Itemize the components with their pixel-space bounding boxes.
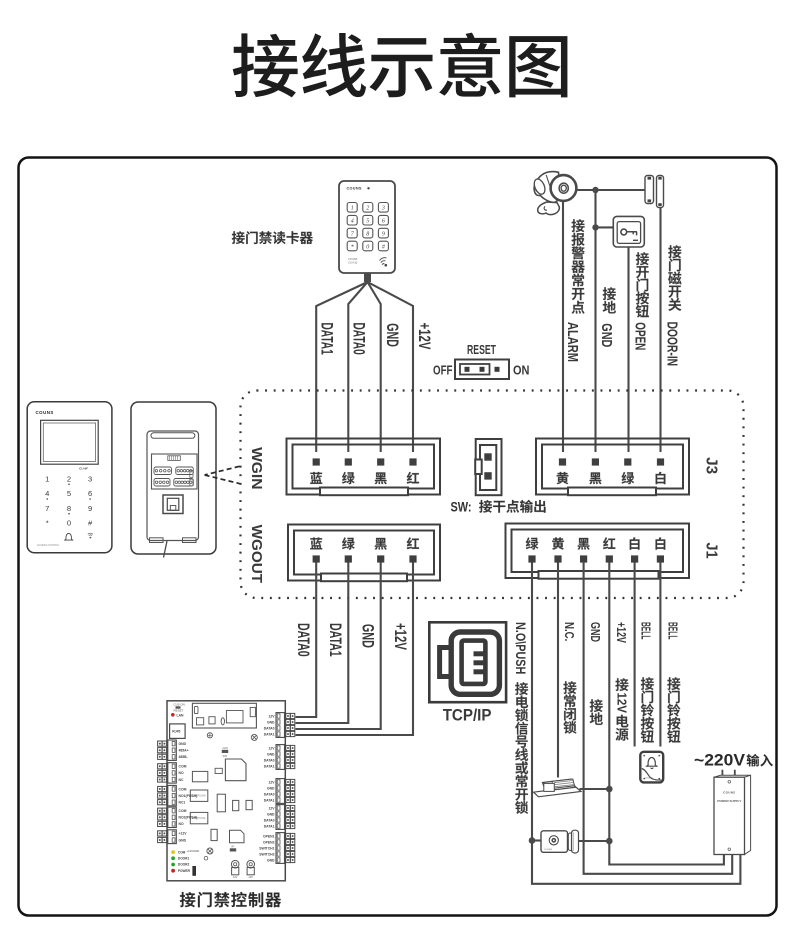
svg-text:COM: COM [179, 765, 187, 769]
svg-text:GND: GND [267, 858, 275, 862]
svg-text:+12V: +12V [614, 622, 628, 643]
svg-text:GND: GND [598, 323, 615, 347]
svg-text:NO: NO [179, 771, 184, 775]
svg-text:DATA1: DATA1 [264, 798, 275, 802]
svg-text:12V: 12V [268, 806, 275, 810]
svg-text:DATA1: DATA1 [264, 824, 275, 828]
svg-text:485A+: 485A+ [179, 749, 189, 753]
svg-text:OPEN1: OPEN1 [263, 834, 275, 838]
svg-text:BELL: BELL [665, 622, 679, 640]
svg-text:COUNS: COUNS [347, 187, 362, 191]
svg-text:RESET: RESET [467, 343, 496, 357]
svg-text:COUNS: COUNS [645, 778, 653, 780]
svg-text:WGOUT: WGOUT [248, 525, 265, 584]
svg-text:12V: 12V [233, 875, 238, 879]
svg-text:2: 2 [67, 475, 71, 484]
svg-text:POWER SUPPLY: POWER SUPPLY [717, 799, 741, 803]
svg-text:COM: COM [179, 809, 187, 813]
svg-text:6: 6 [382, 219, 385, 225]
svg-text:3: 3 [381, 206, 385, 212]
svg-text:OFF: OFF [433, 364, 453, 378]
svg-text:4: 4 [45, 489, 49, 498]
svg-text:RJ45: RJ45 [172, 730, 180, 734]
svg-text:DATA1: DATA1 [317, 323, 336, 355]
svg-text:GND: GND [179, 838, 187, 842]
svg-text:TCP/IP: TCP/IP [443, 707, 492, 725]
svg-text:1: 1 [45, 475, 49, 484]
svg-text:0: 0 [366, 244, 369, 250]
svg-text:2: 2 [366, 206, 369, 212]
svg-text:3: 3 [88, 475, 92, 484]
svg-text:GND: GND [179, 742, 187, 746]
svg-text:DATA1: DATA1 [264, 732, 275, 736]
svg-text:COUNS: COUNS [723, 791, 735, 795]
svg-text:12V: 12V [248, 875, 253, 879]
svg-text:GND: GND [267, 752, 275, 756]
svg-text:DATA0: DATA0 [264, 818, 275, 822]
svg-text:J1: J1 [703, 542, 720, 559]
svg-text:1: 1 [351, 206, 354, 212]
svg-text:DATA0: DATA0 [264, 758, 275, 762]
svg-text:BELL: BELL [639, 622, 653, 640]
svg-text:N.C.: N.C. [562, 622, 576, 641]
svg-text:OPEN2: OPEN2 [263, 840, 275, 844]
svg-text:ON: ON [513, 364, 530, 378]
svg-text:NC1: NC1 [179, 801, 186, 805]
svg-text:ACCESS CONTROL: ACCESS CONTROL [37, 544, 60, 547]
svg-text:NO2(PUSH): NO2(PUSH) [179, 816, 198, 820]
svg-text:8: 8 [366, 232, 369, 238]
svg-text:12V: 12V [268, 714, 275, 718]
svg-text:DOOR-IN: DOOR-IN [663, 322, 680, 367]
svg-text:485B-: 485B- [179, 755, 188, 759]
svg-text:DOOR2: DOOR2 [178, 863, 190, 867]
svg-text:5: 5 [366, 219, 369, 225]
svg-text:RESET: RESET [174, 708, 184, 712]
svg-text:GND: GND [588, 622, 602, 642]
svg-text:DATA0: DATA0 [294, 623, 313, 657]
svg-text:GND: GND [267, 786, 275, 790]
svg-text:6: 6 [88, 489, 92, 498]
svg-text:DATA0: DATA0 [349, 323, 368, 355]
svg-text:0: 0 [67, 519, 71, 528]
svg-text:+12V: +12V [391, 623, 409, 650]
svg-text:GND: GND [267, 812, 275, 816]
svg-text:DOOR1: DOOR1 [178, 857, 190, 861]
svg-text:DATA1: DATA1 [326, 623, 345, 657]
svg-text:SWITCH1: SWITCH1 [259, 846, 274, 850]
svg-text:COM: COM [178, 850, 186, 854]
svg-text:LAN: LAN [177, 714, 185, 718]
svg-text:N.O\PUSH: N.O\PUSH [513, 622, 529, 674]
svg-text:WGIN: WGIN [248, 447, 265, 489]
svg-text:+12VGND: +12VGND [187, 849, 200, 853]
svg-text:CU5: CU5 [223, 746, 229, 750]
svg-text:NC: NC [179, 778, 184, 782]
svg-text:DATA0: DATA0 [264, 726, 275, 730]
svg-text:POWER: POWER [178, 869, 191, 873]
svg-text:*: * [351, 244, 354, 250]
svg-text:CU-K10: CU-K10 [348, 261, 358, 265]
svg-text:OPEN: OPEN [632, 322, 649, 350]
svg-text:8: 8 [67, 504, 71, 513]
svg-text:GND: GND [383, 323, 401, 347]
svg-text:12V: 12V [268, 780, 275, 784]
svg-text:COUNS: COUNS [544, 849, 552, 851]
svg-text:9: 9 [88, 504, 92, 513]
svg-text:DATA0: DATA0 [264, 792, 275, 796]
svg-text:CU5 ON: CU5 ON [174, 703, 185, 707]
svg-text:GND: GND [267, 720, 275, 724]
svg-text:12V: 12V [615, 693, 629, 714]
svg-text:ALARM: ALARM [564, 322, 581, 362]
svg-text:12V: 12V [268, 746, 275, 750]
svg-text:4: 4 [351, 218, 354, 225]
svg-text:NO: NO [179, 822, 184, 826]
svg-text:CU-9F: CU-9F [79, 467, 88, 471]
svg-text:IP: IP [232, 845, 235, 849]
svg-text:COUNS: COUNS [348, 257, 358, 261]
svg-text:J3: J3 [703, 457, 720, 474]
svg-text:~220V: ~220V [694, 750, 746, 769]
svg-text:COM: COM [179, 787, 187, 791]
svg-text:*: * [46, 519, 49, 528]
svg-text:+12V: +12V [179, 832, 188, 836]
svg-text:SWITCH2: SWITCH2 [259, 852, 274, 856]
svg-text:9: 9 [382, 232, 385, 238]
svg-text:DATA1: DATA1 [264, 764, 275, 768]
svg-text:COUNS: COUNS [36, 410, 54, 415]
svg-text:5: 5 [67, 489, 71, 498]
svg-text:SW: SW [223, 754, 228, 758]
svg-text:7: 7 [45, 504, 49, 513]
svg-text:GND: GND [358, 624, 376, 648]
svg-text:+12V: +12V [415, 323, 433, 350]
svg-text:SW:: SW: [451, 500, 472, 515]
svg-text:NO1(PUSH): NO1(PUSH) [179, 794, 198, 798]
